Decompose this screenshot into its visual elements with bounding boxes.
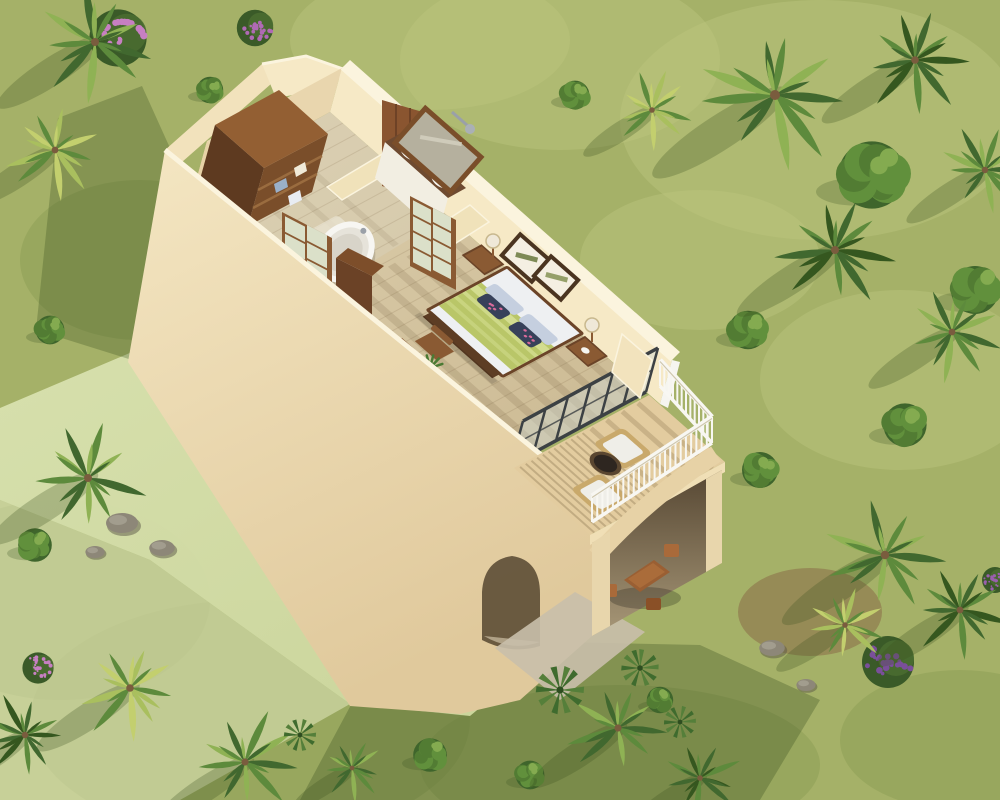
blossom [45,662,47,664]
blossom [992,577,994,579]
scene-svg: Aerial 3D cutaway floor plan of a tropic… [0,0,1000,800]
blossom [262,29,266,33]
blossom [29,657,31,659]
blossom [42,657,46,661]
blossom [988,581,990,583]
lamp-shade [486,234,500,248]
blossom [991,585,993,587]
agave-core [678,720,683,725]
blossom [250,35,255,40]
blossom [37,666,40,669]
blossom [43,673,46,676]
palm-trunk-top [22,732,28,738]
bush-highlight [37,532,46,541]
agave-core [556,686,563,693]
blossom [33,672,36,675]
dining-set-shadow [609,587,681,609]
blossom [986,574,989,577]
villa-aerial-render: Aerial 3D cutaway floor plan of a tropic… [0,0,1000,800]
bush-highlight [50,322,55,327]
blossom [267,29,271,33]
blossom [865,663,870,668]
palm-trunk-top [84,474,92,482]
palm-trunk-top [649,107,655,113]
bush-highlight [755,321,762,328]
blossom [253,22,256,25]
bush-highlight [980,271,994,285]
blossom [259,28,261,30]
palm-trunk-top [831,246,839,254]
dining-chair-3 [646,598,661,610]
rock-highlight [762,642,776,650]
palm-trunk-top [697,775,703,781]
blossom [242,26,246,30]
palm-trunk-top [126,684,134,692]
shower-head-icon [465,124,475,134]
blossom [990,587,993,590]
blossom [251,30,255,34]
blossom [35,655,39,659]
blossom [997,585,999,587]
bush-highlight [762,462,769,469]
dining-chair-2 [664,544,679,557]
blossom [33,666,35,668]
rock-highlight [87,547,98,553]
lamp-shade [585,318,599,332]
blossom [984,583,986,585]
bush-highlight [214,81,219,86]
blossom [35,661,38,664]
palm-trunk-top [842,622,848,628]
blossom [907,665,913,671]
bush-highlight [579,86,587,94]
blossom [983,577,985,579]
blossom [995,580,998,583]
blossom [34,664,36,666]
blossom [138,28,145,35]
blossom [881,672,885,676]
blossom [37,670,39,672]
palm-trunk-top [881,551,889,559]
blossom [112,20,118,26]
palm-trunk-top [91,38,99,46]
palm-trunk-top [957,607,964,614]
palm-trunk-top [982,167,988,173]
flowering-bush [22,652,53,683]
palm-trunk-top [949,329,956,336]
blossom [264,35,268,39]
blossom [258,21,262,25]
blossom [33,659,35,661]
palm-trunk-top [52,147,59,154]
rock-highlight [109,515,127,525]
palm-trunk-top [911,56,919,64]
blossom [257,37,262,42]
palm-trunk-top [770,90,780,100]
bush-highlight [880,153,893,166]
bush-highlight [906,408,918,420]
blossom [901,663,908,670]
agave-core [637,665,643,671]
rock-highlight [152,542,166,550]
agave-core [298,733,303,738]
blossom [39,674,43,678]
rock-highlight [798,680,809,686]
palm-trunk-top [350,766,355,771]
blossom [117,41,121,45]
bush-highlight [661,692,668,699]
blossom [249,25,252,28]
flowering-bush [237,10,273,46]
blossom [256,26,259,29]
bush-highlight [431,743,437,749]
veranda-pillar-left [592,531,610,636]
veranda-pillar-right [706,470,722,572]
blossom [253,27,256,30]
palm-trunk-top [241,758,248,765]
palm-trunk-top [614,724,621,731]
blossom [245,31,249,35]
blossom [48,671,52,675]
